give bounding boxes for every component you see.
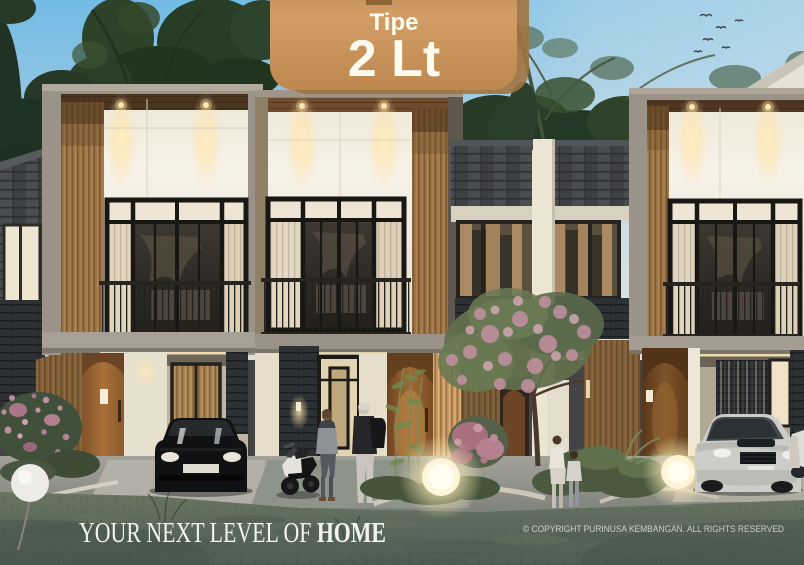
svg-text:2 Lt: 2 Lt <box>348 30 440 88</box>
svg-text:© COPYRIGHT PURINUSA KEMBANGAN: © COPYRIGHT PURINUSA KEMBANGAN. ALL RIGH… <box>523 524 784 535</box>
svg-text:YOUR NEXT LEVEL OF HOME: YOUR NEXT LEVEL OF HOME <box>79 517 386 549</box>
